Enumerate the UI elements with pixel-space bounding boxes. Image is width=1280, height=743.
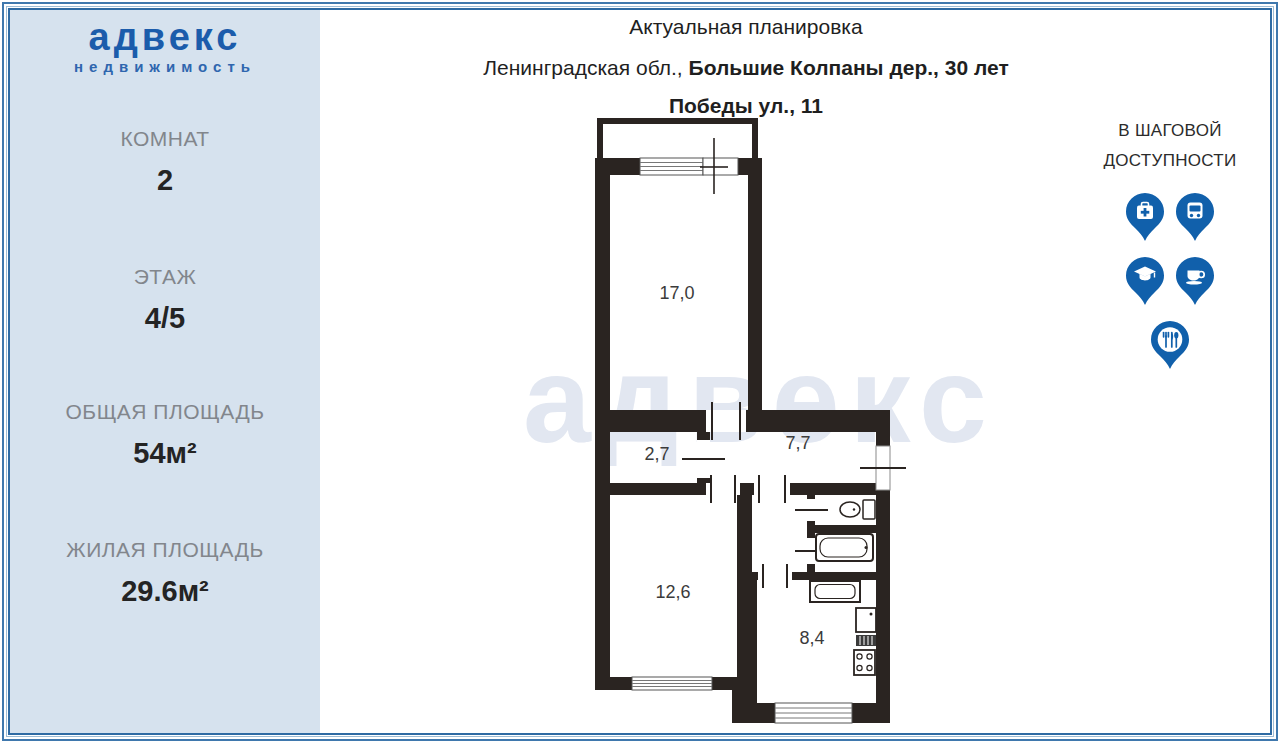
walkable-title-line2: ДОСТУПНОСТИ	[1098, 146, 1242, 176]
toilet-icon	[840, 500, 875, 519]
stat-total-area-value: 54м²	[10, 437, 320, 469]
stat-floor-value: 4/5	[10, 302, 320, 334]
stat-living-area-value: 29.6м²	[10, 575, 320, 607]
stat-rooms-label: КОМНАТ	[10, 125, 320, 153]
room-label-kitchen: 8,4	[799, 628, 824, 649]
stat-floor-label: ЭТАЖ	[10, 263, 320, 291]
agency-logo-tagline: недвижимость	[10, 59, 320, 75]
room-label-living1: 17,0	[659, 283, 694, 304]
stat-rooms-value: 2	[10, 164, 320, 196]
amenity-pins	[1120, 192, 1220, 370]
agency-logo: адвекс недвижимость	[10, 18, 320, 75]
stat-living-area: ЖИЛАЯ ПЛОЩАДЬ 29.6м²	[10, 536, 320, 607]
floor-plan: 17,0 2,7 7,7 12,6 8,4	[570, 110, 930, 740]
walkable-panel: В ШАГОВОЙ ДОСТУПНОСТИ	[1098, 116, 1242, 370]
kitchen-sink-icon	[856, 608, 876, 646]
stove-icon	[854, 650, 875, 675]
medical-pin-icon	[1125, 192, 1165, 242]
stat-living-area-label: ЖИЛАЯ ПЛОЩАДЬ	[10, 536, 320, 564]
header: Актуальная планировка Ленинградская обл.…	[400, 12, 1092, 125]
walkable-title-line1: В ШАГОВОЙ	[1098, 116, 1242, 146]
page-title: Актуальная планировка	[400, 12, 1092, 42]
address-street-part1: Большие Колпаны дер., 30 лет	[689, 56, 1009, 79]
property-stats-sidebar: адвекс недвижимость КОМНАТ 2 ЭТАЖ 4/5 ОБ…	[10, 10, 320, 733]
stat-floor: ЭТАЖ 4/5	[10, 263, 320, 334]
address-street-part2: Победы ул., 11	[669, 94, 823, 117]
window-kitchen	[775, 703, 852, 723]
window-room17	[640, 138, 738, 194]
restaurant-pin-icon	[1150, 320, 1190, 370]
toilet-bath-divider	[807, 525, 876, 533]
room-label-closet: 2,7	[644, 444, 669, 465]
washing-machine-icon	[810, 581, 860, 602]
education-pin-icon	[1125, 256, 1165, 306]
floor-plan-drawing	[570, 110, 930, 740]
room-label-living2: 12,6	[655, 582, 690, 603]
bathtub-icon	[816, 534, 873, 561]
stat-total-area-label: ОБЩАЯ ПЛОЩАДЬ	[10, 398, 320, 426]
agency-logo-brand: адвекс	[10, 18, 320, 56]
room17-right-wall	[748, 158, 762, 432]
flyer-page: адвекс недвижимость КОМНАТ 2 ЭТАЖ 4/5 ОБ…	[0, 0, 1280, 743]
address: Ленинградская обл., Большие Колпаны дер.…	[400, 49, 1092, 125]
bus-pin-icon	[1175, 192, 1215, 242]
room-label-hall: 7,7	[785, 433, 810, 454]
stat-total-area: ОБЩАЯ ПЛОЩАДЬ 54м²	[10, 398, 320, 469]
window-room126	[632, 677, 712, 690]
cafe-pin-icon	[1175, 256, 1215, 306]
address-region: Ленинградская обл.,	[483, 56, 688, 79]
stat-rooms: КОМНАТ 2	[10, 125, 320, 196]
